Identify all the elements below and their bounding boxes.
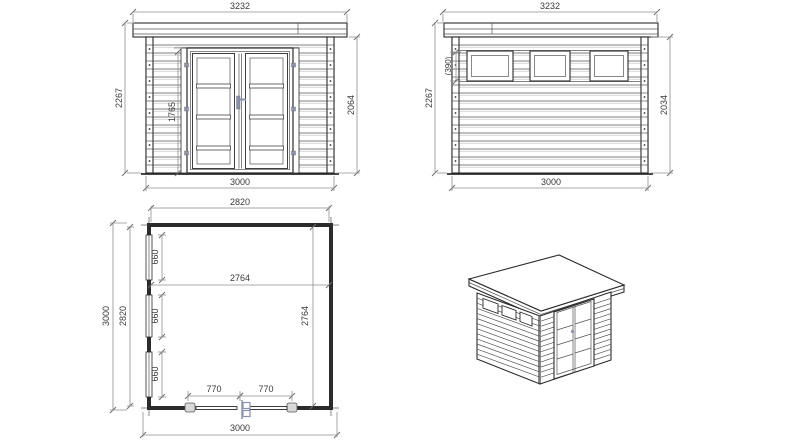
dim-plan-window-seg-3: 660 [150,366,160,381]
dim-side-roof-width: 3232 [540,1,560,11]
door-handle [237,96,241,109]
door-hinge [292,63,296,67]
dim-plan-outer-depth: 3000 [101,306,111,326]
floor-plan-view: 2820 3000 2820 660 660 660 2764 2764 770… [101,197,339,433]
plan-door-leaf-left [196,407,237,410]
plan-door-jamb-left [185,403,195,412]
technical-drawing-sheet: 3232 2267 1765 2064 3000 3232 (390) 2267… [0,0,794,446]
front-roof-slab [133,23,347,37]
side-elevation-view: 3232 (390) 2267 2034 3000 [424,1,669,187]
door-hinge [292,151,296,155]
dim-side-height-left: 2267 [424,88,434,108]
dim-plan-door-right: 770 [258,384,273,394]
dim-plan-window-seg-2: 660 [150,308,160,323]
dim-side-wall-width: 3000 [541,177,561,187]
dim-plan-door-left: 770 [206,384,221,394]
drawing-canvas: 3232 2267 1765 2064 3000 3232 (390) 2267… [0,0,794,446]
iso-door-handle [571,330,574,333]
dim-front-height-left: 2267 [114,88,124,108]
front-log-ends-right [327,37,334,173]
plan-wall-bottom-right [297,406,333,410]
dim-front-door-height: 1765 [167,102,177,122]
side-log-ends-left [452,37,459,173]
plan-wall-right [329,223,333,410]
side-log-ends-right [641,37,648,173]
dim-plan-inner-depth: 2820 [118,306,128,326]
front-log-ends-left [146,37,153,173]
iso-door [554,299,594,379]
isometric-view [469,255,624,384]
door-hinge [292,107,296,111]
plan-wall-top [147,223,333,227]
dim-plan-interior-width: 2764 [230,273,250,283]
dim-front-wall-width: 3000 [230,177,250,187]
dim-front-height-right: 2064 [346,95,356,115]
plan-door-lock-symbol [242,400,250,419]
front-door-leaf-left [193,54,235,169]
dim-side-height-right: 2034 [659,95,669,115]
dim-side-window-height: (390) [444,56,453,75]
dim-plan-bottom: 3000 [230,423,250,433]
plan-door-jamb-right [287,403,297,412]
plan-wall-bottom-left [147,406,185,410]
side-roof-slab [444,23,658,37]
door-hinge [185,107,189,111]
plan-door-leaf-right [250,407,287,410]
dim-front-roof-width: 3232 [230,1,250,11]
dim-plan-window-seg-1: 660 [150,249,160,264]
front-door-leaf-right [246,54,288,169]
dim-plan-interior-depth: 2764 [300,306,310,326]
dim-plan-top: 2820 [230,197,250,207]
front-elevation-view: 3232 2267 1765 2064 3000 [114,1,356,187]
door-hinge [185,63,189,67]
door-hinge [185,151,189,155]
